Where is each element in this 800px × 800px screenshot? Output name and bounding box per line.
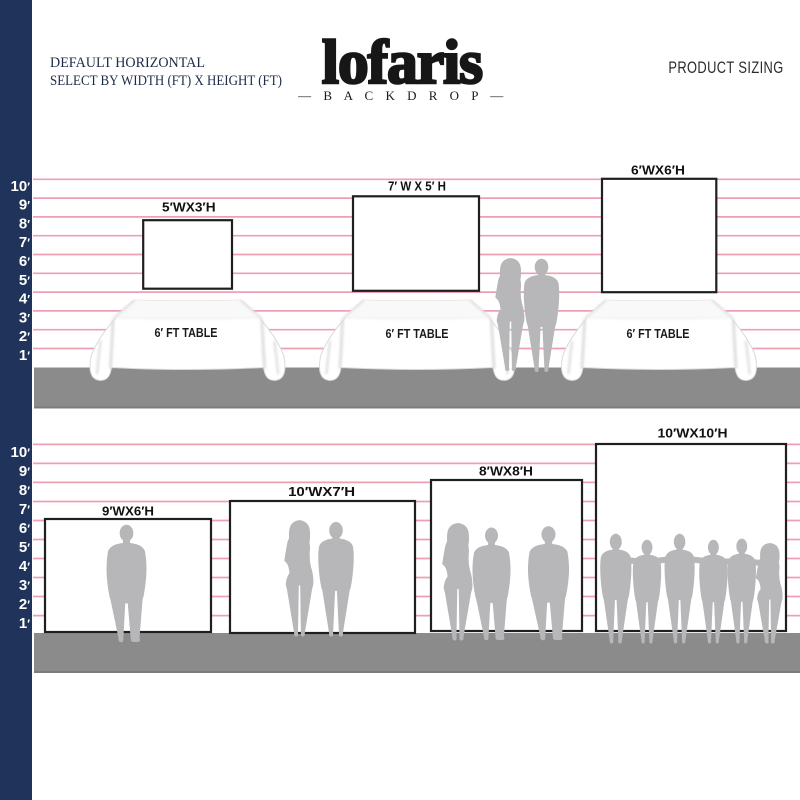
svg-text:10′WX7′H: 10′WX7′H bbox=[288, 484, 355, 499]
svg-text:9′WX6′H: 9′WX6′H bbox=[102, 504, 154, 519]
svg-text:DEFAULT HORIZONTAL: DEFAULT HORIZONTAL bbox=[50, 55, 205, 71]
svg-text:lofaris: lofaris bbox=[322, 29, 482, 97]
svg-text:6′ FT TABLE: 6′ FT TABLE bbox=[155, 326, 218, 340]
svg-text:— B A C K D R O P —: — B A C K D R O P — bbox=[297, 88, 508, 103]
svg-text:10′WX10′H: 10′WX10′H bbox=[658, 426, 728, 441]
svg-text:6′ FT TABLE: 6′ FT TABLE bbox=[627, 327, 690, 341]
svg-text:7′ W X 5′ H: 7′ W X 5′ H bbox=[388, 179, 446, 194]
svg-text:6′WX6′H: 6′WX6′H bbox=[631, 163, 685, 178]
svg-text:PRODUCT SIZING: PRODUCT SIZING bbox=[668, 60, 783, 78]
svg-text:SELECT BY WIDTH (FT) X HEIGHT: SELECT BY WIDTH (FT) X HEIGHT (FT) bbox=[50, 73, 282, 89]
svg-text:5′WX3′H: 5′WX3′H bbox=[162, 200, 216, 215]
svg-text:8′WX8′H: 8′WX8′H bbox=[479, 464, 533, 479]
svg-text:6′ FT TABLE: 6′ FT TABLE bbox=[386, 327, 449, 341]
